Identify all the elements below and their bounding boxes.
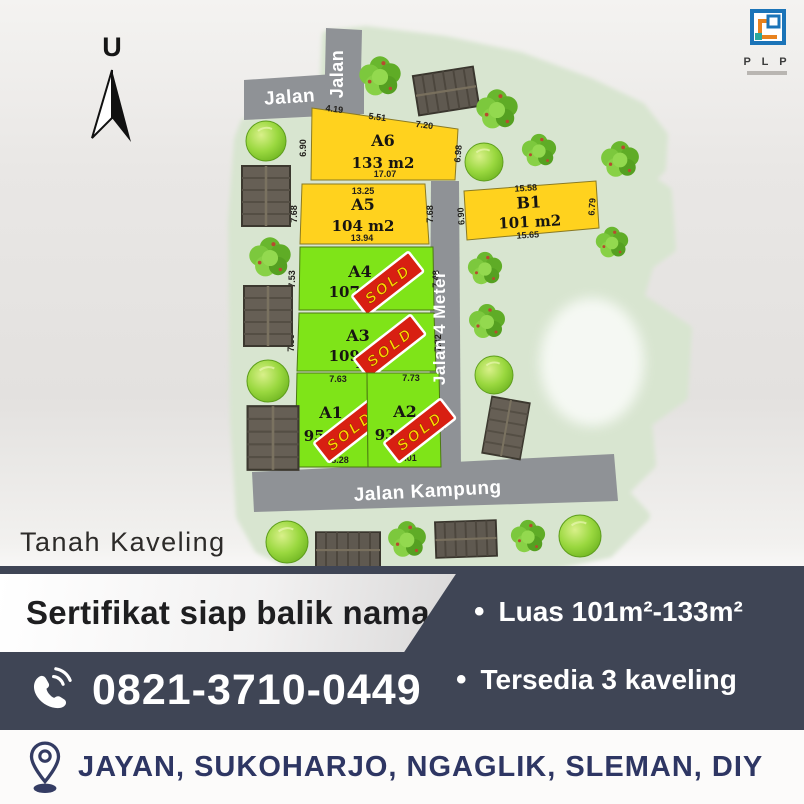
house-icon [316, 532, 380, 566]
house-icon [248, 406, 299, 470]
location-pin-icon [26, 740, 64, 794]
north-label: U [102, 32, 122, 62]
dim-label: 7.68 [425, 205, 435, 223]
house-icon [435, 520, 497, 558]
bullet-label: Tersedia 3 kaveling [481, 664, 737, 696]
headline-text: Sertifikat siap balik nama [26, 594, 430, 632]
dim-label: 15.65 [516, 229, 539, 241]
house-icon [413, 67, 479, 116]
plot-id: A4 [347, 262, 372, 281]
tree-icon [559, 515, 601, 557]
house-icon [244, 286, 292, 346]
map-caption: Tanah Kaveling [20, 527, 226, 558]
dim-label: 15.58 [514, 182, 537, 194]
flyer: A6 133 m2 4.19 5.51 7.20 6.90 6.98 17.07… [0, 0, 804, 804]
bullet-item: • Luas 101m²-133m² [474, 596, 743, 628]
north-indicator: U [84, 26, 148, 146]
plot-id: A6 [370, 131, 395, 150]
dim-label: 7.73 [402, 373, 420, 383]
bullet-marker: • [474, 597, 485, 627]
plot-A5: A5 104 m2 13.25 7.68 7.68 13.94 [289, 184, 435, 244]
plot-A4: A4 107 m2 7.53 7.48 14.8 SOLD [287, 247, 441, 316]
phone-number: 0821-3710-0449 [92, 666, 422, 715]
dim-label: 6.90 [455, 207, 466, 225]
logo-tagline-bar [747, 71, 787, 75]
dim-label: 7.63 [329, 374, 347, 384]
road-label-jalan-4-meter: Jalan 4 Meter [430, 271, 449, 385]
bullet-label: Luas 101m²-133m² [499, 596, 743, 628]
phone-row: 0821-3710-0449 [0, 658, 450, 722]
dim-label: 7.20 [415, 119, 434, 131]
tree-icon [475, 356, 513, 394]
dim-label: 13.94 [351, 233, 374, 243]
tree-icon [266, 521, 308, 563]
plot-id: A3 [345, 326, 370, 345]
info-band: Sertifikat siap balik nama 0821-3710-044… [0, 566, 804, 730]
plp-logo-icon [740, 8, 794, 50]
watermark-blob [540, 298, 644, 426]
dim-label: 6.90 [298, 139, 308, 157]
house-icon [242, 166, 290, 226]
plot-id: A5 [350, 195, 375, 214]
plot-id: A1 [318, 403, 343, 422]
dim-label: 4.19 [325, 103, 344, 115]
headline-banner: Sertifikat siap balik nama [0, 574, 470, 652]
dim-label: 6.98 [452, 145, 463, 163]
feature-bullets: • Luas 101m²-133m² • Tersedia 3 kaveling [450, 566, 804, 730]
north-arrow-icon [92, 70, 112, 138]
bullet-marker: • [456, 665, 467, 695]
dim-label: 5.51 [368, 111, 387, 123]
road-label-jalan-top: Jalan [263, 85, 315, 110]
plot-id: B1 [516, 192, 542, 212]
bullet-item: • Tersedia 3 kaveling [456, 664, 737, 696]
plot-id: A2 [392, 402, 417, 421]
logo-text: P L P [738, 56, 796, 68]
tree-icon [247, 360, 289, 402]
tree-icon [246, 121, 286, 161]
north-arrow-icon [112, 70, 131, 142]
dim-label: 13.25 [352, 186, 375, 196]
company-logo: P L P [738, 8, 796, 75]
location-text: JAYAN, SUKOHARJO, NGAGLIK, SLEMAN, DIY [78, 751, 763, 784]
phone-icon [24, 664, 76, 716]
location-bar: JAYAN, SUKOHARJO, NGAGLIK, SLEMAN, DIY [0, 730, 804, 804]
plot-A3: A3 109 m2 7.36 7.32 15.36 SOLD [286, 313, 443, 379]
dim-label: 6.79 [586, 198, 597, 216]
tree-icon [465, 143, 503, 181]
dim-label: 17.07 [374, 169, 397, 179]
road-label-jalan-vertical: Jalan [327, 50, 347, 99]
